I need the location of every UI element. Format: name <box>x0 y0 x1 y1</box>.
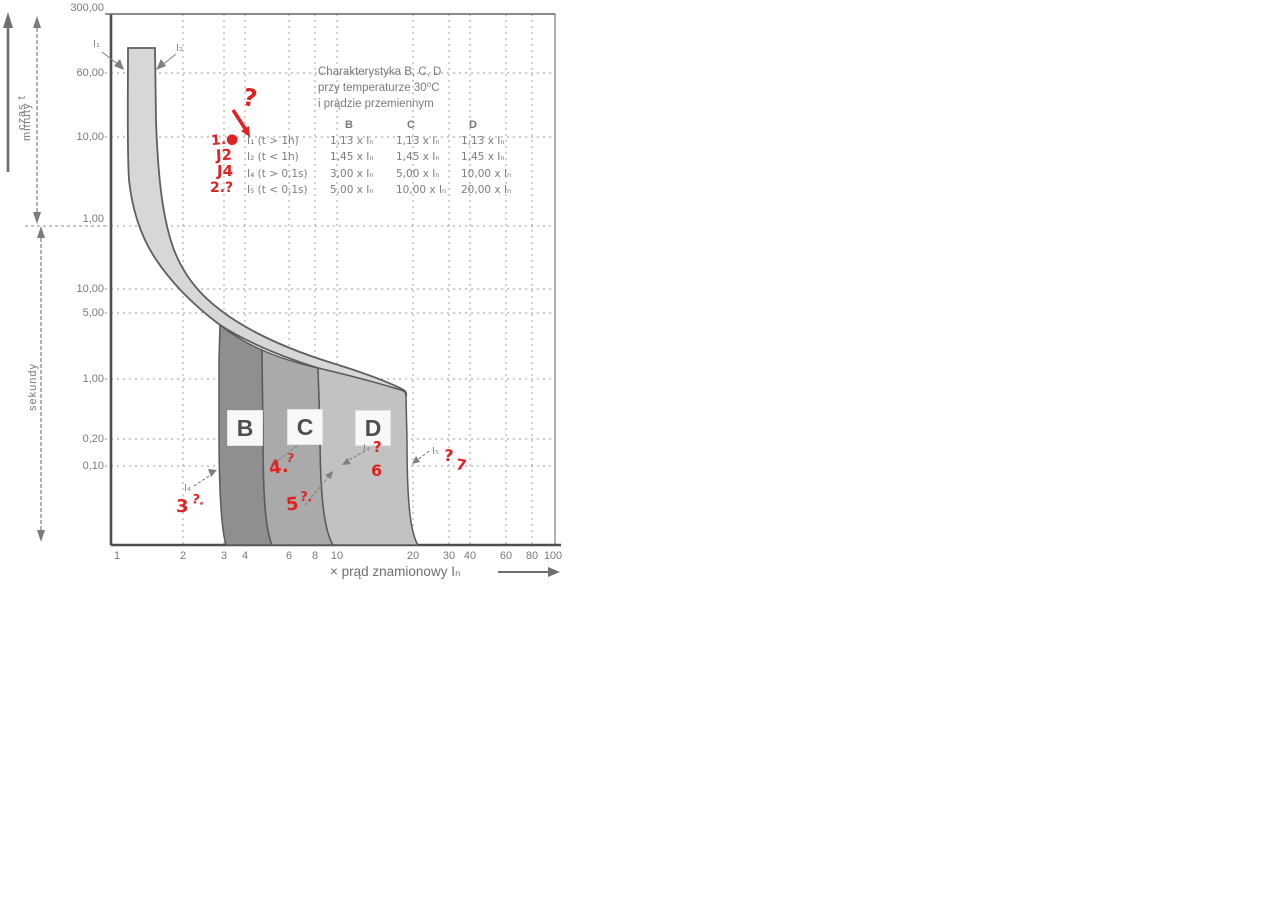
x-tick-label: 20 <box>398 550 428 562</box>
cell-value: 1,13 x Iₙ <box>396 135 461 151</box>
y-tick-label-seconds: 1,00 <box>56 373 104 385</box>
i4-arrow-band-b <box>194 469 217 486</box>
x-tick-label: 2 <box>168 550 198 562</box>
band-d-area <box>318 368 418 545</box>
y-tick-label-minutes: 60,00 <box>56 67 104 79</box>
time-axis-arrow <box>3 12 13 172</box>
x-axis-title-arrow <box>498 567 560 577</box>
cell-value: 20,00 x Iₙ <box>461 184 531 200</box>
cell-value: 1,13 x Iₙ <box>461 135 531 151</box>
annotation-q7: ? <box>443 448 454 465</box>
annotation-q6: ? <box>373 440 382 455</box>
i4-label-d: I₄ <box>363 443 370 454</box>
cell-value: 5,00 x Iₙ <box>330 184 396 200</box>
y-tick-label-minutes: 1,00 <box>56 213 104 225</box>
i5-arrow-band-d <box>412 451 429 464</box>
y-tick-label-seconds: 0,10 <box>56 460 104 472</box>
annotation-n6: 6 <box>371 463 382 479</box>
table-title-line3: i prądzie przemiennym <box>318 96 441 112</box>
i2-arrow <box>156 54 176 70</box>
table-header-c: C <box>407 119 415 131</box>
i1-arrow <box>102 52 124 70</box>
row-label: I₁ (t > 1h) <box>247 135 330 151</box>
cell-value: 10,00 x Iₙ <box>461 168 531 184</box>
y-tick-label-seconds: 0,20 <box>56 433 104 445</box>
annotation-n2: 2.? <box>210 181 233 195</box>
table-title-line2: przy temperaturze 30⁰C <box>318 80 441 96</box>
i1-label: I₁ <box>93 39 100 50</box>
table-header-d: D <box>469 119 477 131</box>
annotation-n3: 3 <box>176 498 189 516</box>
cell-value: 3,00 x Iₙ <box>330 168 396 184</box>
i2-label: I₂ <box>176 43 183 54</box>
x-tick-label: 40 <box>455 550 485 562</box>
cell-value: 1,45 x Iₙ <box>396 151 461 167</box>
row-label: I₅ (t < 0,1s) <box>247 184 330 200</box>
minutes-axis-label: minuty <box>21 95 33 141</box>
row-label: I₄ (t > 0,1s) <box>247 168 330 184</box>
x-tick-label: 10 <box>322 550 352 562</box>
annotation-q3: ?. <box>191 493 206 508</box>
y-tick-label-minutes: 300,00 <box>56 2 104 14</box>
table-header-b: B <box>345 119 353 131</box>
scanned-trip-curve-figure: 300,0060,0010,001,0010,005,001,000,200,1… <box>0 0 620 620</box>
x-tick-label: 1 <box>102 550 132 562</box>
y-tick-label-seconds: 10,00 <box>56 283 104 295</box>
band-c-label: C <box>287 409 323 445</box>
minutes-dimension-line <box>33 16 41 224</box>
cell-value: 5,00 x Iₙ <box>396 168 461 184</box>
seconds-axis-label: sekundy <box>27 357 39 411</box>
annotation-j4: J4 <box>217 164 233 179</box>
cell-value: 1,13 x Iₙ <box>330 135 396 151</box>
threshold-table: I₁ (t > 1h) 1,13 x Iₙ 1,13 x Iₙ 1,13 x I… <box>247 135 531 201</box>
x-tick-label: 100 <box>538 550 568 562</box>
table-title: Charakterystyka B, C, D przy temperaturz… <box>318 64 441 112</box>
x-tick-label: 4 <box>230 550 260 562</box>
annotation-n5: 5 <box>285 495 299 514</box>
row-label: I₂ (t < 1h) <box>247 151 330 167</box>
cell-value: 10,00 x Iₙ <box>396 184 461 200</box>
i4-label-b: I₄ <box>184 483 191 494</box>
band-b-label: B <box>227 410 263 446</box>
cell-value: 1,45 x Iₙ <box>461 151 531 167</box>
y-tick-label-minutes: 10,00 <box>56 131 104 143</box>
table-title-line1: Charakterystyka B, C, D <box>318 64 441 80</box>
cell-value: 1,45 x Iₙ <box>330 151 396 167</box>
y-tick-label-seconds: 5,00 <box>56 307 104 319</box>
annotation-q5: ?. <box>299 490 313 504</box>
i5-label-d: I₅ <box>432 446 439 457</box>
x-axis-title: × prąd znamionowy Iₙ <box>330 564 460 580</box>
